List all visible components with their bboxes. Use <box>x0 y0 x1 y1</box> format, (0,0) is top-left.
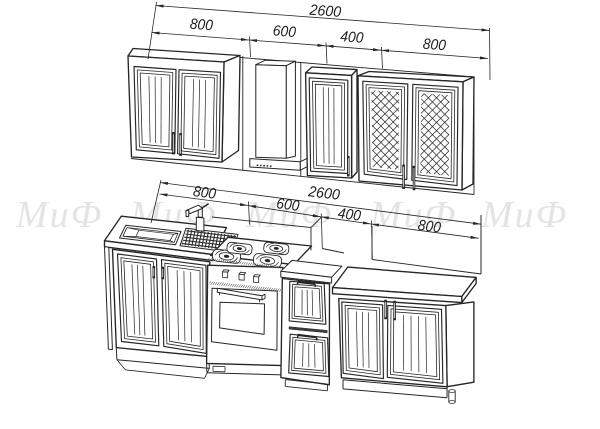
svg-text:400: 400 <box>337 205 362 225</box>
svg-text:600: 600 <box>272 22 297 41</box>
svg-text:800: 800 <box>189 16 214 35</box>
svg-text:МиФ: МиФ <box>15 194 103 236</box>
svg-text:400: 400 <box>340 28 365 47</box>
svg-text:600: 600 <box>275 195 300 215</box>
svg-text:800: 800 <box>192 183 217 203</box>
svg-text:800: 800 <box>417 217 442 237</box>
svg-text:МиФ: МиФ <box>480 194 568 236</box>
svg-text:800: 800 <box>422 36 447 55</box>
svg-text:2600: 2600 <box>308 2 342 21</box>
